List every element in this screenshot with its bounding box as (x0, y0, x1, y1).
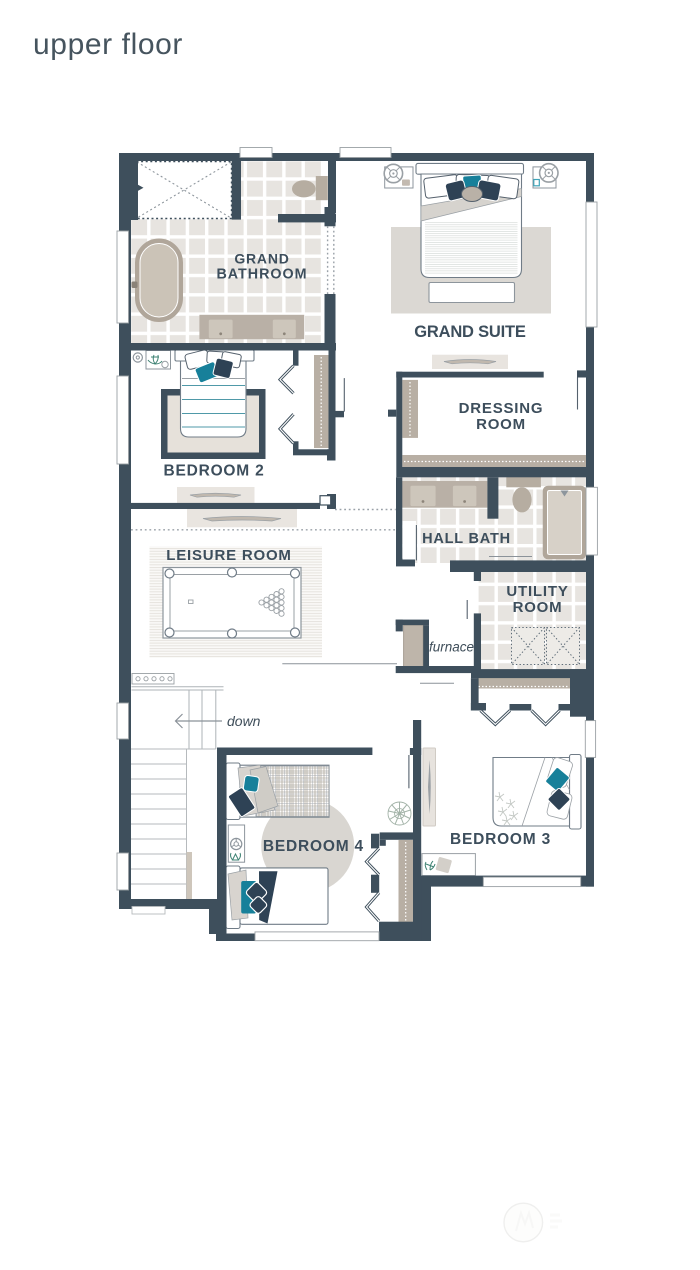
svg-text:upper floor: upper floor (33, 28, 183, 61)
svg-text:DRESSING: DRESSING (459, 400, 544, 417)
svg-text:furnace: furnace (429, 640, 474, 655)
svg-text:GRAND SUITE: GRAND SUITE (414, 323, 526, 341)
svg-text:HALL BATH: HALL BATH (422, 531, 511, 547)
svg-text:ROOM: ROOM (513, 599, 563, 616)
svg-text:BATHROOM: BATHROOM (216, 266, 307, 282)
svg-text:LEISURE ROOM: LEISURE ROOM (166, 547, 291, 564)
svg-text:BEDROOM 3: BEDROOM 3 (450, 831, 551, 848)
svg-text:down: down (227, 713, 261, 729)
svg-text:UTILITY: UTILITY (506, 583, 568, 600)
svg-text:GRAND: GRAND (234, 251, 289, 267)
svg-text:BEDROOM 2: BEDROOM 2 (163, 463, 264, 480)
svg-text:ROOM: ROOM (476, 416, 526, 433)
svg-text:BEDROOM 4: BEDROOM 4 (263, 838, 364, 855)
